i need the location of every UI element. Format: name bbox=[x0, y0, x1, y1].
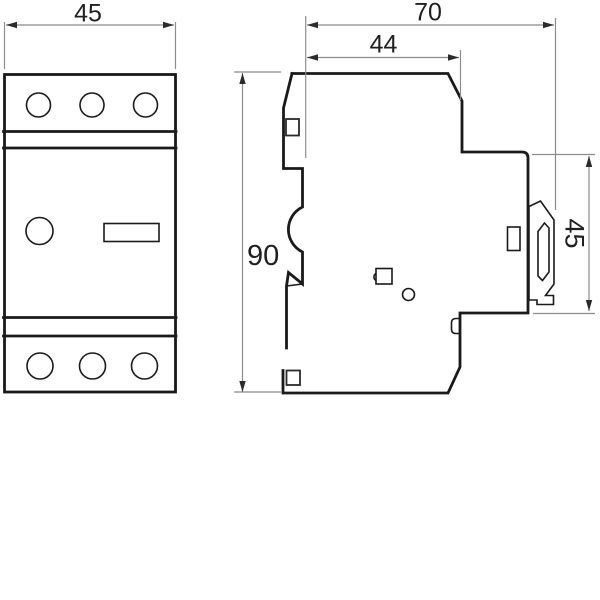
side-small-hole bbox=[403, 289, 415, 301]
side-claw-edge bbox=[287, 284, 303, 286]
dim-overall-height-label: 90 bbox=[247, 240, 279, 272]
dim-front-width-label: 45 bbox=[74, 0, 102, 28]
arrow-left bbox=[307, 22, 318, 28]
arrow-down bbox=[239, 381, 245, 392]
dim-rail-height-label: 45 bbox=[560, 218, 590, 248]
top-terminal-screw-2 bbox=[80, 93, 104, 117]
side-body-outline bbox=[283, 74, 528, 394]
dim-front-width: 45 bbox=[5, 0, 176, 69]
arrow-right bbox=[163, 22, 174, 28]
arrow-left bbox=[307, 54, 318, 60]
bottom-terminal-screw-2 bbox=[80, 353, 106, 379]
side-top-notch-square bbox=[286, 119, 299, 136]
latch-detail bbox=[376, 269, 392, 285]
din-rail-clip-groove bbox=[538, 223, 549, 281]
top-terminal-screw-3 bbox=[134, 93, 158, 117]
side-front-face-profile bbox=[284, 74, 303, 349]
front-body-outline bbox=[5, 75, 176, 393]
arrow-right bbox=[543, 22, 554, 28]
dim-upper-depth: 44 bbox=[307, 31, 461, 101]
dimensions: 45 70 44 90 bbox=[5, 0, 596, 392]
front-label-window bbox=[104, 224, 159, 242]
dim-overall-depth: 70 bbox=[306, 0, 556, 210]
bottom-terminal-screw-3 bbox=[132, 353, 158, 379]
side-bottom-notch-square bbox=[287, 371, 301, 386]
bottom-terminal-screw-1 bbox=[27, 353, 53, 379]
arrow-up bbox=[586, 156, 592, 167]
top-terminal-screw-1 bbox=[27, 93, 51, 117]
front-view bbox=[4, 75, 177, 393]
dim-upper-depth-label: 44 bbox=[370, 31, 398, 59]
arrow-up bbox=[239, 73, 245, 84]
side-rear-slot bbox=[508, 227, 521, 251]
arrow-down bbox=[586, 300, 592, 311]
dim-overall-height: 90 bbox=[234, 72, 281, 392]
din-rail-clip-outer bbox=[529, 201, 554, 305]
dim-rail-height: 45 bbox=[532, 155, 595, 314]
arrow-right bbox=[448, 54, 459, 60]
dim-overall-depth-label: 70 bbox=[414, 0, 442, 27]
side-view bbox=[283, 74, 554, 394]
arrow-left bbox=[6, 22, 17, 28]
dimension-drawing: 45 70 44 90 bbox=[0, 0, 600, 600]
front-indicator-circle bbox=[26, 218, 53, 245]
